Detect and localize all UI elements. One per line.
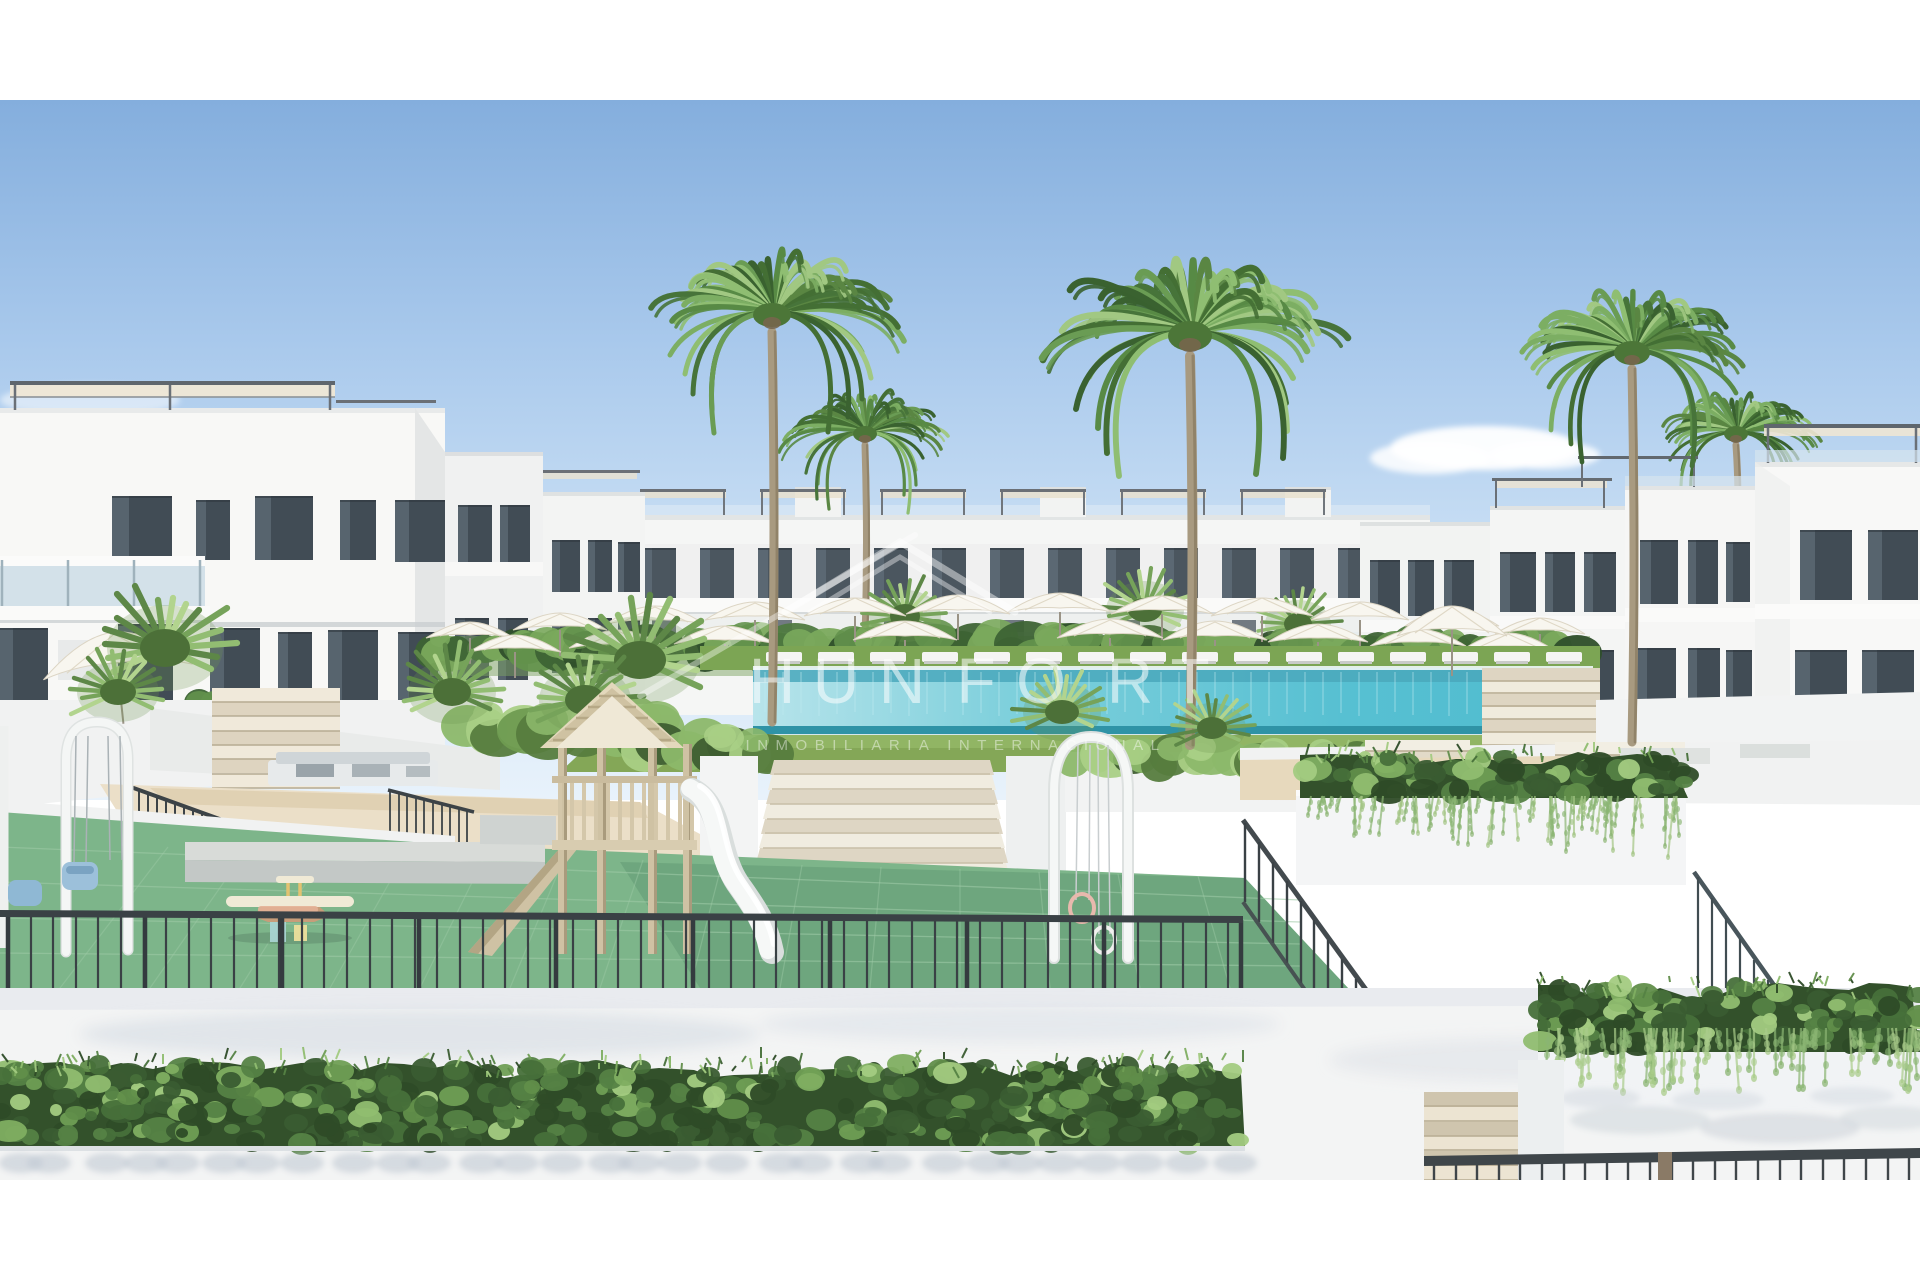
svg-text:F: F xyxy=(956,645,995,717)
svg-text:N: N xyxy=(879,645,925,717)
svg-text:U: U xyxy=(813,645,859,717)
svg-text:H: H xyxy=(749,645,795,717)
svg-text:O: O xyxy=(1016,645,1066,717)
svg-text:INMOBILIARIA INTERNACIONAL: INMOBILIARIA INTERNACIONAL xyxy=(746,737,1167,754)
svg-text:T: T xyxy=(1170,645,1209,717)
svg-text:R: R xyxy=(1107,645,1153,717)
